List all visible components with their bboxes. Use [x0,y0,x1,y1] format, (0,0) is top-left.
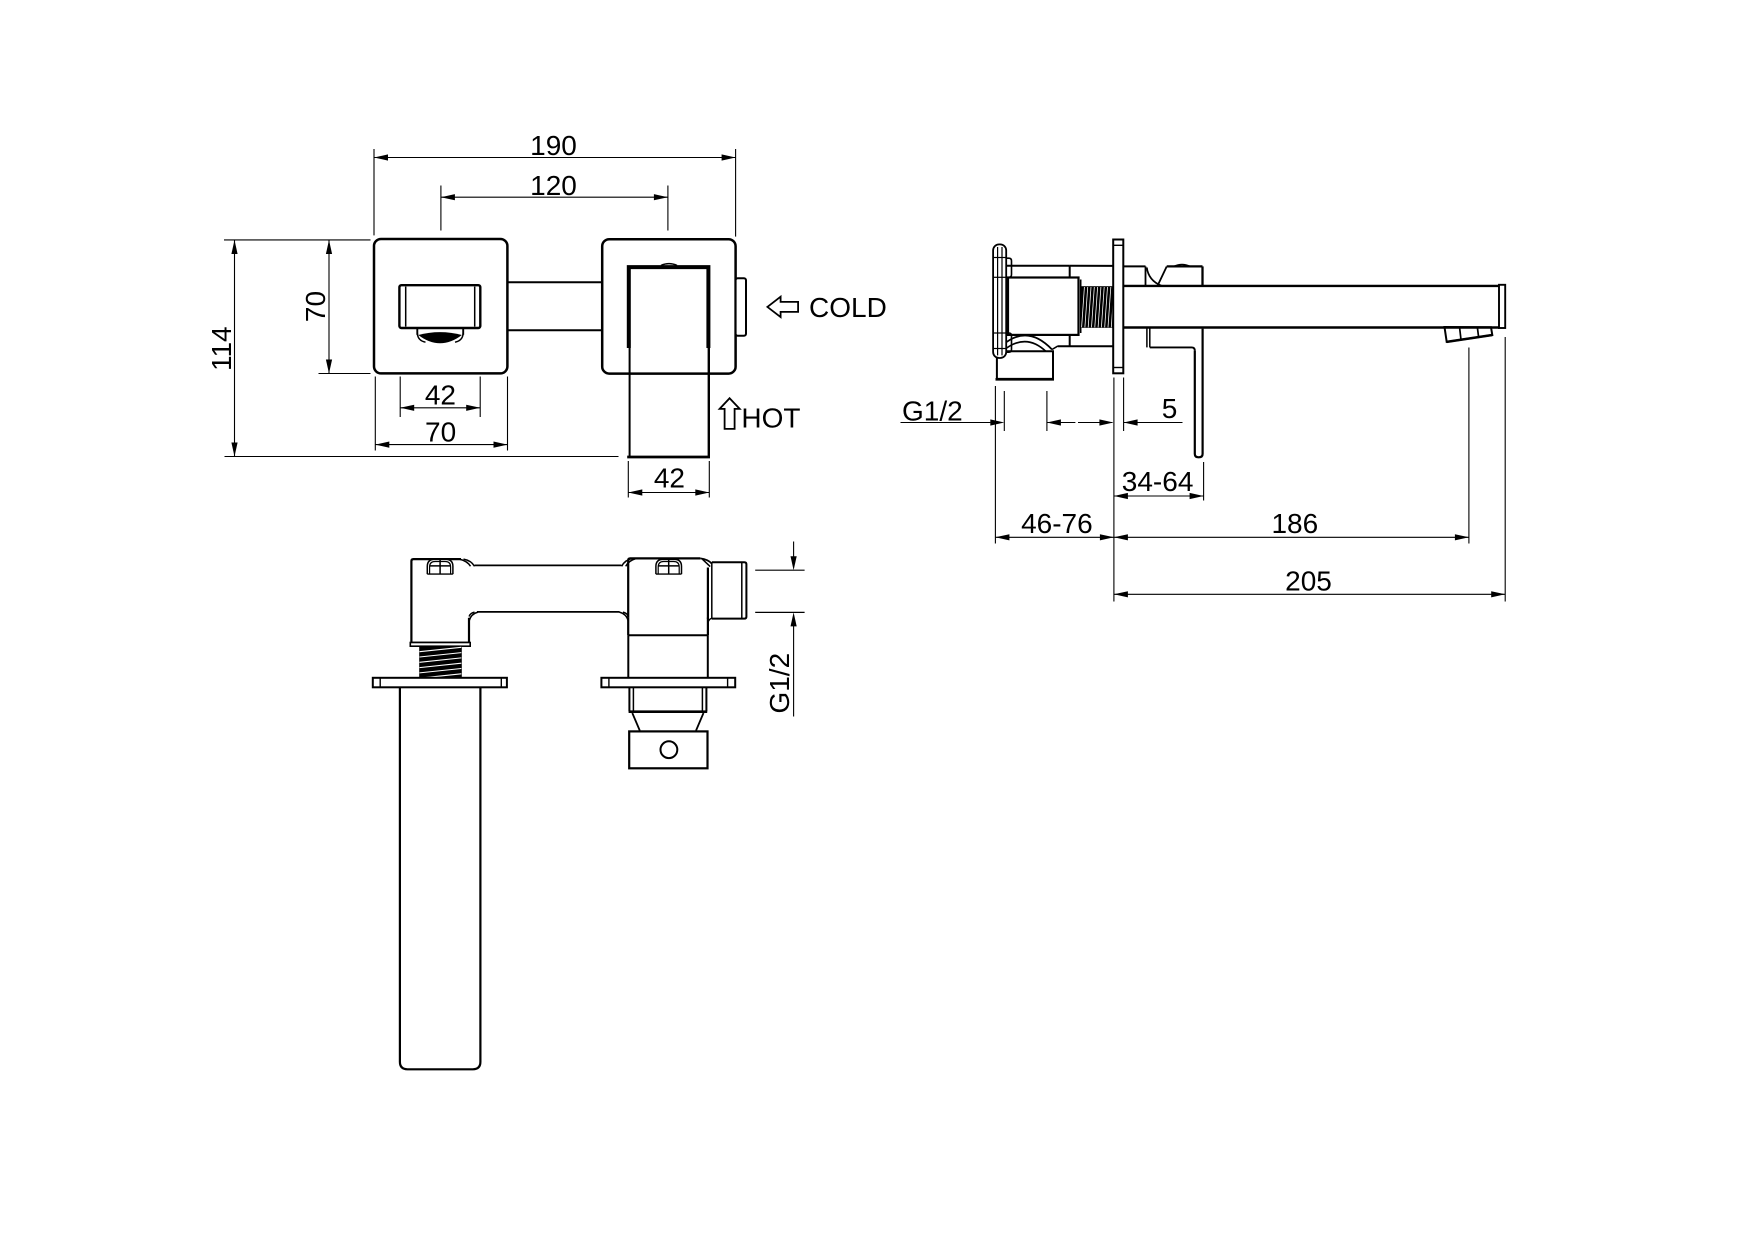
svg-text:46-76: 46-76 [1021,508,1093,539]
svg-text:5: 5 [1162,393,1178,424]
svg-text:205: 205 [1285,565,1332,596]
svg-text:G1/2: G1/2 [764,653,795,714]
svg-text:186: 186 [1271,508,1318,539]
svg-text:COLD: COLD [809,292,887,323]
svg-text:42: 42 [654,463,685,494]
svg-text:70: 70 [300,291,331,322]
svg-text:190: 190 [530,130,577,161]
svg-text:114: 114 [206,326,237,371]
svg-text:HOT: HOT [741,403,800,434]
svg-text:34-64: 34-64 [1122,466,1194,497]
svg-text:G1/2: G1/2 [902,396,963,427]
svg-text:120: 120 [530,170,577,201]
svg-text:42: 42 [425,379,456,410]
svg-text:70: 70 [425,416,456,447]
